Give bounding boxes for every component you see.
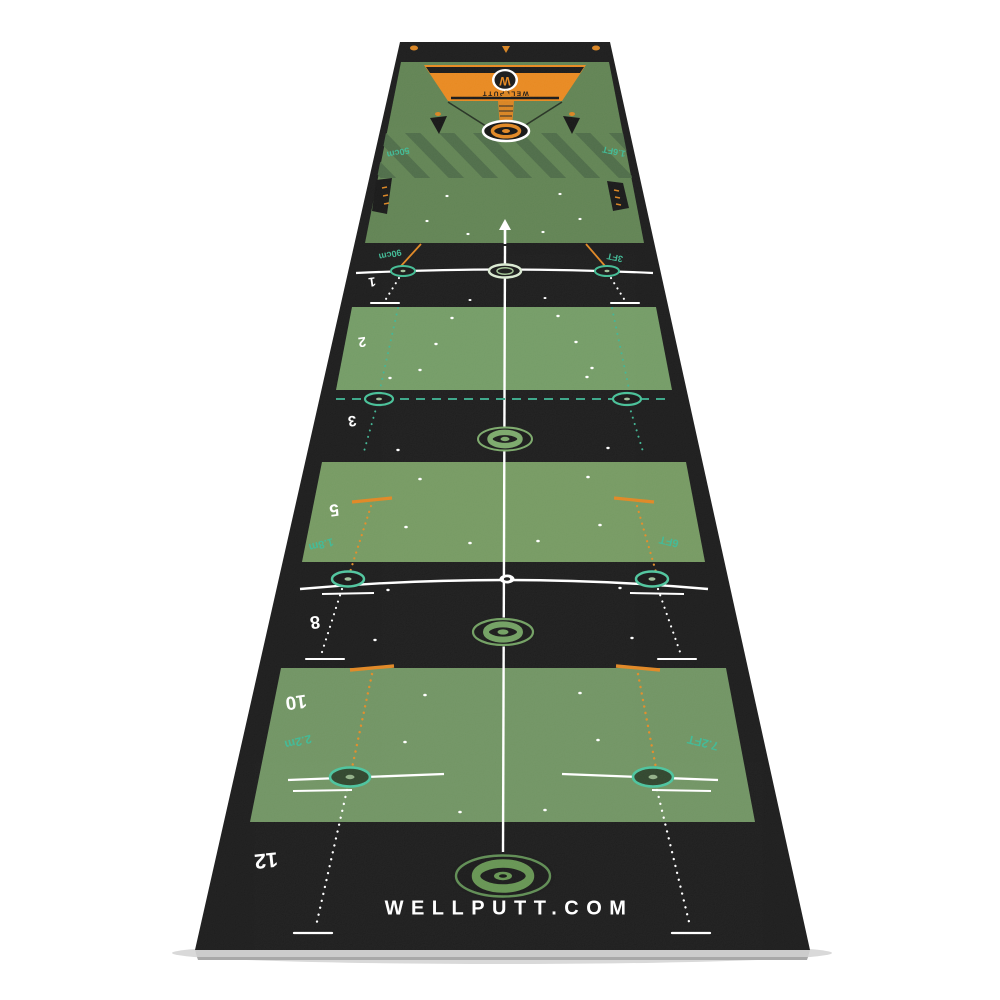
mat-front-edge-shade xyxy=(197,957,808,960)
mat-front-edge xyxy=(195,950,810,957)
putting-mat-illustration: W WELLPUTT 50cm 1.6FT xyxy=(0,0,1000,1000)
carpet-texture xyxy=(150,30,850,960)
product-photo: W WELLPUTT 50cm 1.6FT xyxy=(0,0,1000,1000)
